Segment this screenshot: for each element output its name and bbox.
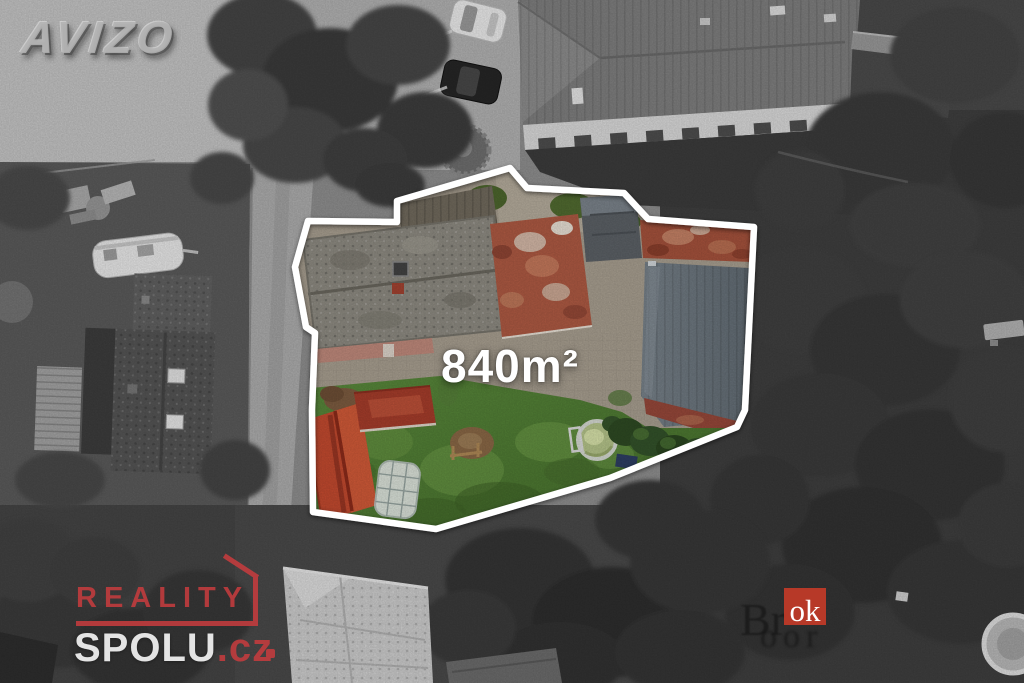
cz-tld: .cz bbox=[217, 626, 273, 670]
reality-spolu-line2: SPOLU.cz bbox=[74, 626, 273, 671]
spolu-text: SPOLU bbox=[74, 626, 217, 670]
logo-dot bbox=[266, 649, 275, 658]
reality-spolu-logo: REALITY SPOLU.cz bbox=[70, 556, 285, 681]
agency-watermark: Br ok oor bbox=[740, 585, 930, 660]
reality-spolu-line1: REALITY bbox=[76, 582, 249, 615]
agency-watermark-subtext: oor bbox=[760, 618, 823, 656]
avizo-watermark: AVIZO bbox=[19, 12, 179, 64]
plot-area-label: 840m² bbox=[441, 339, 579, 393]
house-wall-icon bbox=[253, 576, 258, 624]
aerial-photo: 840m² AVIZO REALITY SPOLU.cz Br ok oor bbox=[0, 0, 1024, 683]
